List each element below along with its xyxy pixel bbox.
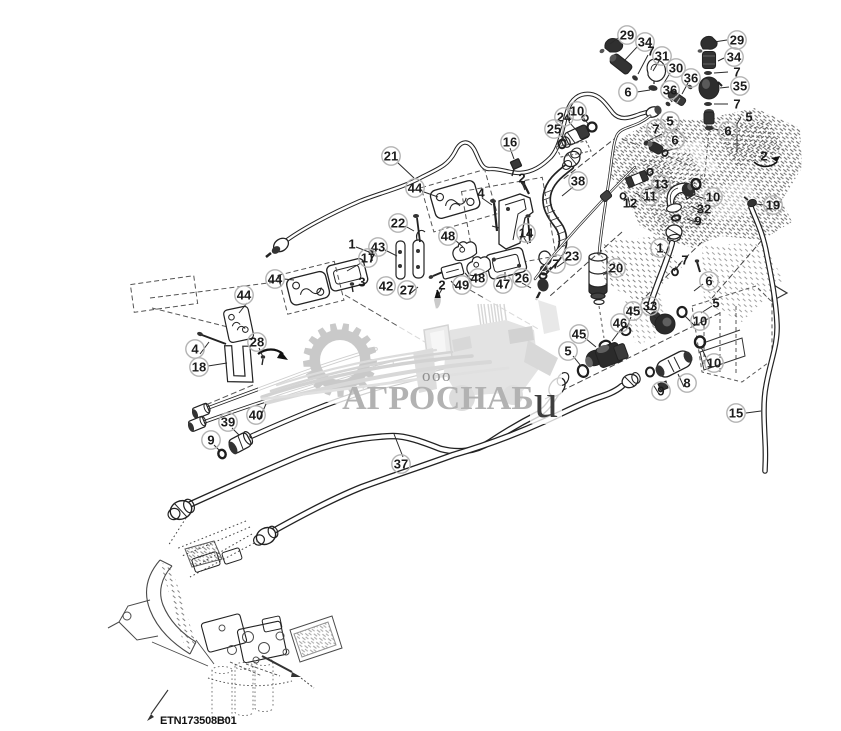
svg-text:1: 1 <box>348 237 355 252</box>
svg-text:8: 8 <box>683 376 690 391</box>
svg-text:49: 49 <box>455 278 469 293</box>
svg-text:7: 7 <box>733 97 740 112</box>
svg-text:21: 21 <box>384 149 398 164</box>
svg-text:31: 31 <box>655 49 669 64</box>
svg-text:44: 44 <box>237 288 252 303</box>
svg-text:ETN173508B01: ETN173508B01 <box>160 715 237 727</box>
svg-text:20: 20 <box>609 261 623 276</box>
svg-text:7: 7 <box>552 257 559 272</box>
svg-text:36: 36 <box>684 71 698 86</box>
svg-text:10: 10 <box>693 314 707 329</box>
svg-text:37: 37 <box>394 457 408 472</box>
svg-text:30: 30 <box>669 61 683 76</box>
svg-text:АГРОСНАБ: АГРОСНАБ <box>342 380 534 417</box>
svg-text:6: 6 <box>724 124 731 139</box>
svg-text:1: 1 <box>656 241 663 256</box>
svg-text:34: 34 <box>727 50 742 65</box>
svg-text:9: 9 <box>207 433 214 448</box>
svg-text:10: 10 <box>570 104 584 119</box>
svg-text:18: 18 <box>192 360 206 375</box>
svg-text:15: 15 <box>729 406 743 421</box>
svg-text:25: 25 <box>547 122 561 137</box>
svg-text:23: 23 <box>565 249 579 264</box>
svg-text:9: 9 <box>657 384 664 399</box>
svg-text:29: 29 <box>620 28 634 43</box>
svg-text:22: 22 <box>391 216 405 231</box>
svg-text:45: 45 <box>572 327 586 342</box>
svg-text:33: 33 <box>643 299 657 314</box>
svg-text:44: 44 <box>408 181 423 196</box>
svg-text:39: 39 <box>221 415 235 430</box>
svg-text:7: 7 <box>652 122 659 137</box>
svg-text:5: 5 <box>666 114 673 129</box>
svg-text:10: 10 <box>707 356 721 371</box>
svg-text:4: 4 <box>477 186 485 201</box>
svg-text:u: u <box>534 375 558 428</box>
svg-text:27: 27 <box>400 283 414 298</box>
svg-text:26: 26 <box>515 271 529 286</box>
svg-text:9: 9 <box>694 214 701 229</box>
svg-text:6: 6 <box>671 133 678 148</box>
svg-text:48: 48 <box>441 229 455 244</box>
svg-text:19: 19 <box>766 198 780 213</box>
svg-text:40: 40 <box>249 408 263 423</box>
svg-text:5: 5 <box>712 296 719 311</box>
svg-text:44: 44 <box>268 272 283 287</box>
svg-text:35: 35 <box>733 79 747 94</box>
svg-text:3: 3 <box>358 275 365 290</box>
svg-text:2: 2 <box>760 149 767 164</box>
svg-text:48: 48 <box>471 271 485 286</box>
svg-text:2: 2 <box>518 171 525 186</box>
svg-text:36: 36 <box>663 83 677 98</box>
svg-text:6: 6 <box>705 274 712 289</box>
svg-text:5: 5 <box>564 344 571 359</box>
svg-text:7: 7 <box>681 253 688 268</box>
svg-text:38: 38 <box>571 174 585 189</box>
svg-text:29: 29 <box>730 33 744 48</box>
svg-text:14: 14 <box>519 226 534 241</box>
svg-text:42: 42 <box>379 279 393 294</box>
svg-text:6: 6 <box>624 85 631 100</box>
svg-text:47: 47 <box>496 277 510 292</box>
svg-text:11: 11 <box>643 189 657 204</box>
svg-text:4: 4 <box>191 342 199 357</box>
svg-text:16: 16 <box>503 135 517 150</box>
svg-text:45: 45 <box>626 304 640 319</box>
svg-text:12: 12 <box>623 196 637 211</box>
svg-text:28: 28 <box>250 335 264 350</box>
svg-text:2: 2 <box>438 278 445 293</box>
svg-text:17: 17 <box>361 251 375 266</box>
svg-text:5: 5 <box>745 110 752 125</box>
